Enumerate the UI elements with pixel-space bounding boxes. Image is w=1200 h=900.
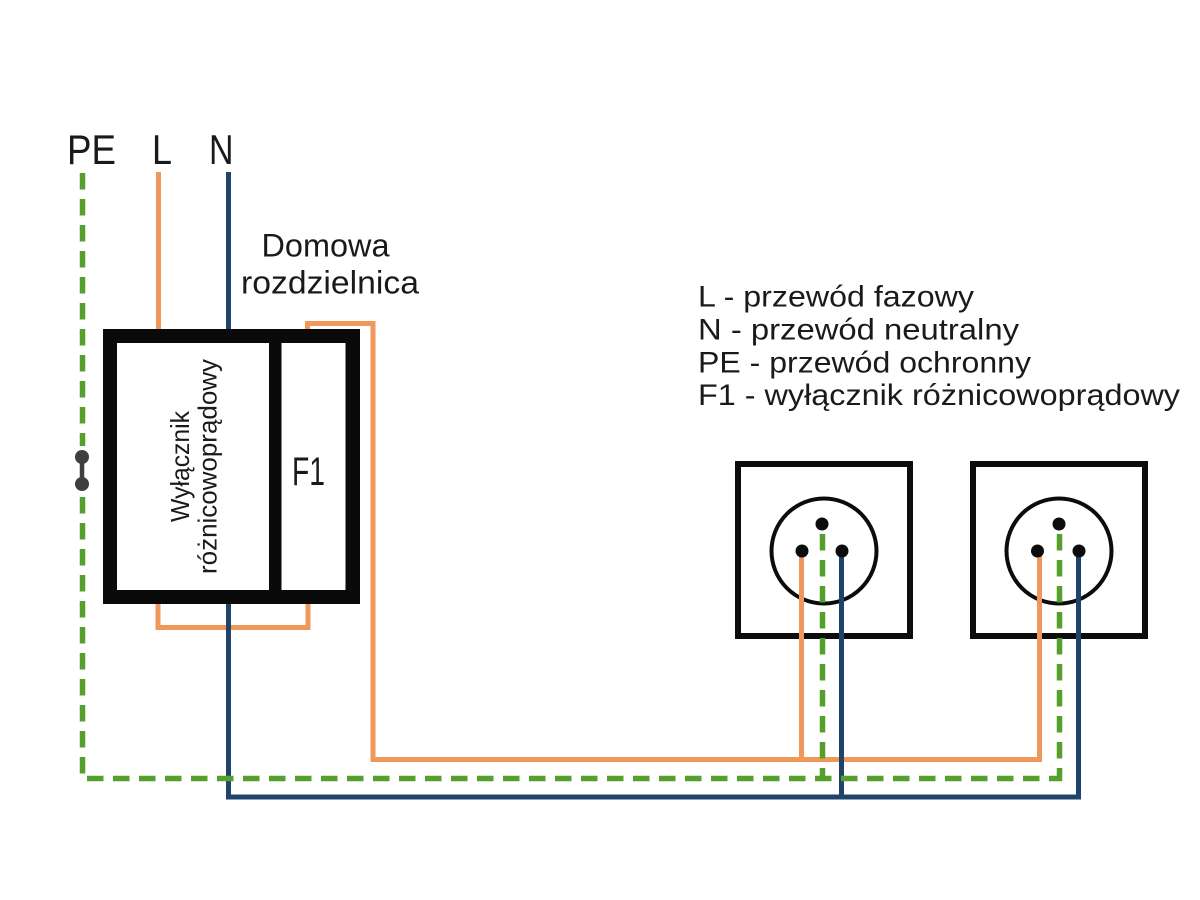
svg-text:N - przewód neutralny: N - przewód neutralny xyxy=(698,313,1019,346)
svg-text:F1 - wyłącznik różnicowoprądow: F1 - wyłącznik różnicowoprądowy xyxy=(698,379,1180,412)
svg-text:rozdzielnica: rozdzielnica xyxy=(241,265,420,301)
svg-text:PE: PE xyxy=(67,126,116,173)
svg-text:PE - przewód ochronny: PE - przewód ochronny xyxy=(698,347,1031,380)
svg-text:F1: F1 xyxy=(292,450,325,494)
svg-text:różnicowoprądowy: różnicowoprądowy xyxy=(193,359,223,574)
svg-text:L: L xyxy=(152,126,172,173)
svg-text:N: N xyxy=(209,126,234,173)
svg-text:Domowa: Domowa xyxy=(262,228,391,264)
svg-text:Wyłącznik: Wyłącznik xyxy=(165,410,195,522)
svg-text:L - przewód fazowy: L - przewód fazowy xyxy=(698,281,974,314)
